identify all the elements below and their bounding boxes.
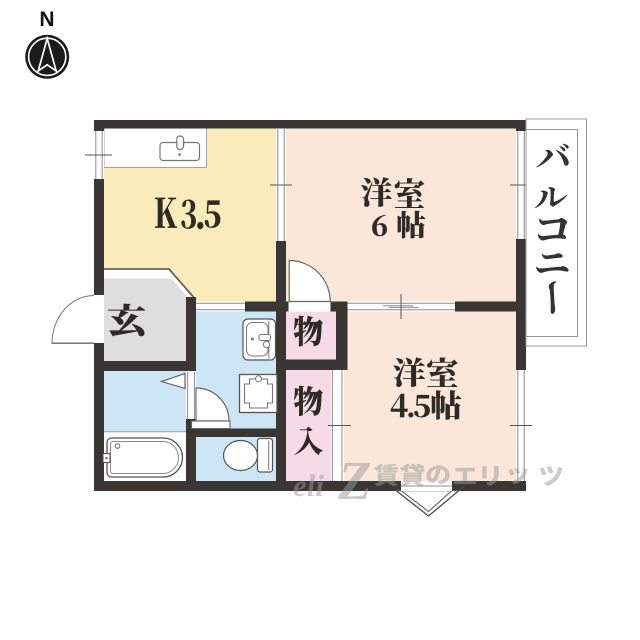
svg-text:N: N	[39, 8, 54, 31]
svg-text:eli: eli	[293, 468, 324, 503]
svg-text:Z: Z	[337, 450, 372, 511]
